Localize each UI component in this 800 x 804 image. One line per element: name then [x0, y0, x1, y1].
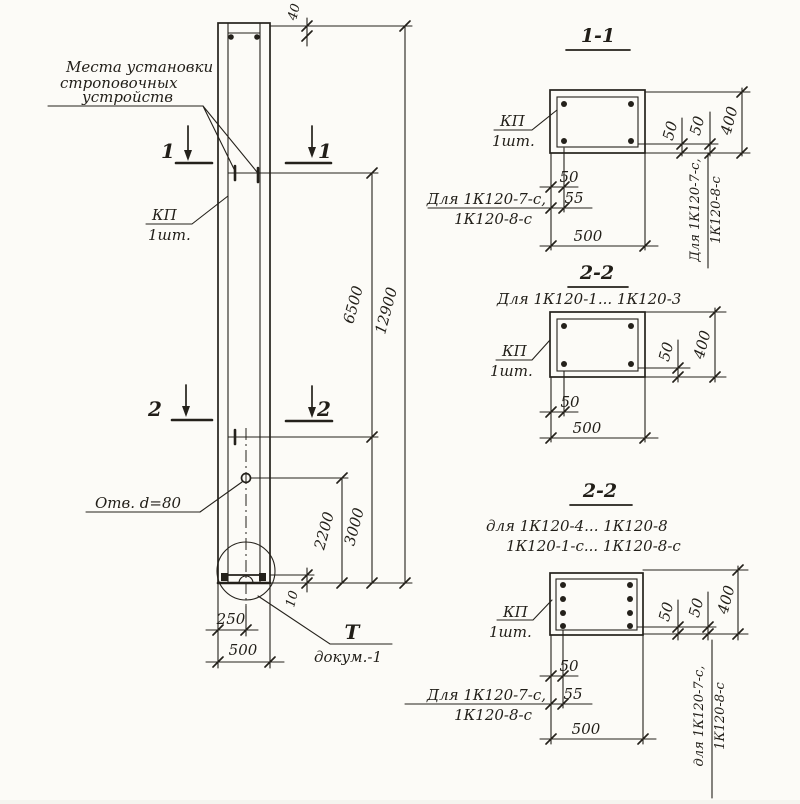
dim-50: 50 [559, 657, 579, 675]
embed-plate-bottom-left [221, 573, 228, 581]
variant-note-right-2: 1К120-8-с [713, 682, 728, 750]
section-2-2b-subtitle-2: 1К120-1-с... 1К120-8-с [506, 537, 681, 555]
kp-name: КП [151, 206, 178, 224]
dim-400: 400 [690, 328, 715, 362]
rebar-dot [560, 582, 566, 588]
dim-3000: 3000 [341, 506, 368, 548]
section-2-label-left: 2 [147, 397, 162, 421]
dim-40: 40 [285, 2, 304, 23]
rebar-dot [627, 610, 633, 616]
rebar-dot [561, 101, 567, 107]
stirrup-outline [557, 97, 638, 147]
section-2-2b-title: 2-2 [582, 480, 617, 502]
dim-400: 400 [714, 583, 739, 617]
kp-name: КП [502, 603, 529, 621]
embed-plate-bottom-right [259, 573, 266, 581]
variant-note-right-2: 1К120-8-с [709, 176, 724, 244]
dim-500: 500 [574, 227, 603, 245]
section-1-1-title: 1-1 [581, 25, 615, 47]
embed-dot-top-right [254, 34, 260, 40]
section-2-2a-subtitle: Для 1К120-1... 1К120-3 [496, 290, 681, 308]
variant-note-left-2: 1К120-8-с [454, 210, 532, 228]
dim-500: 500 [229, 641, 258, 659]
technical-drawing: 1 1 2 2 Места установки строповочных уст… [0, 0, 800, 800]
dim-55: 55 [564, 189, 583, 207]
dim-6500: 6500 [340, 284, 367, 326]
detail-leader [258, 596, 392, 644]
dim-50: 50 [559, 168, 579, 186]
kp-label-1-1: КП 1шт. [492, 110, 557, 150]
dim-250: 250 [216, 610, 246, 628]
dimension-lines [206, 18, 412, 668]
detail-ref-top: Т [345, 620, 362, 644]
section-outline [550, 312, 645, 377]
variant-note-left-2: 1К120-8-с [454, 706, 532, 724]
embed-dot-top-left [228, 34, 234, 40]
dim-r50a: 50 [655, 600, 677, 624]
rebar-dot [561, 323, 567, 329]
rebar-dot [627, 596, 633, 602]
kp-qty: 1шт. [148, 226, 191, 244]
variant-note-right-1: Для 1К120-7-с, [688, 158, 703, 262]
strop-note-line3: устройств [81, 88, 173, 106]
rebar-dot [627, 582, 633, 588]
kp-label-main: КП 1шт. [146, 196, 228, 244]
stirrup-outline [556, 579, 637, 630]
dim-55: 55 [563, 685, 582, 703]
rebar-dot [628, 323, 634, 329]
section-mark-1: 1 1 [161, 126, 332, 163]
strop-note-leaders [48, 106, 257, 172]
dim-10: 10 [283, 589, 302, 609]
column-inner-lines [228, 23, 260, 583]
rebar-dot [628, 138, 634, 144]
dim-r50a: 50 [659, 119, 681, 143]
kp-qty: 1шт. [490, 362, 533, 380]
hole-note-text: Отв. d=80 [95, 494, 182, 512]
kp-name: КП [499, 112, 526, 130]
dim-2200: 2200 [310, 510, 338, 553]
kp-label-2-2b: КП 1шт. [489, 600, 552, 641]
dim-r50b: 50 [686, 114, 708, 138]
kp-qty: 1шт. [492, 132, 535, 150]
section-2-2a-title: 2-2 [579, 262, 614, 284]
kp-name: КП [501, 342, 528, 360]
rebar-dot [628, 361, 634, 367]
section-1-label-left: 1 [161, 139, 175, 163]
dimension-ticks [213, 21, 410, 667]
section-2-2a-view: 2-2 Для 1К120-1... 1К120-3 КП 1шт. 50 50… [490, 262, 726, 443]
variant-note-right-1: для 1К120-7-с, [692, 666, 707, 767]
dim-r50b: 50 [685, 596, 707, 620]
stirrup-outline [557, 319, 638, 371]
rebar-dot [560, 610, 566, 616]
rebar-dot [560, 596, 566, 602]
dim-500: 500 [572, 720, 601, 738]
strop-point-marks [235, 166, 258, 444]
column-outline [218, 23, 270, 583]
kp-qty: 1шт. [489, 623, 532, 641]
section-1-1-view: 1-1 КП 1шт. 50 55 500 Для 1К120-7-с, 1К1… [426, 25, 750, 268]
dimension-labels: 40 12900 6500 3000 2200 10 250 500 [216, 2, 401, 659]
section-1-label-right: 1 [318, 139, 332, 163]
dim-50: 50 [560, 393, 580, 411]
section-2-label-right: 2 [316, 397, 331, 421]
rebar-dot [561, 138, 567, 144]
dim-500: 500 [573, 419, 602, 437]
blueprint-sheet: 1 1 2 2 Места установки строповочных уст… [0, 0, 800, 800]
section-2-2b-subtitle-1: для 1К120-4... 1К120-8 [486, 517, 668, 535]
detail-ref-bottom: докум.-1 [314, 648, 382, 666]
dim-400: 400 [717, 104, 742, 138]
kp-label-2-2a: КП 1шт. [490, 340, 550, 380]
section-mark-2: 2 2 [147, 385, 332, 421]
variant-note-left-1: Для 1К120-7-с, [426, 190, 546, 208]
dim-r50: 50 [655, 340, 677, 364]
column-elevation-view: 1 1 2 2 Места установки строповочных уст… [48, 2, 412, 668]
variant-note-left-1: Для 1К120-7-с, [426, 686, 546, 704]
section-2-2b-view: 2-2 для 1К120-4... 1К120-8 1К120-1-с... … [405, 480, 748, 798]
detail-callout: Т докум.-1 [258, 596, 392, 666]
rebar-dot [561, 361, 567, 367]
rebar-dot [560, 623, 566, 629]
rebar-dot [627, 623, 633, 629]
rebar-dot [628, 101, 634, 107]
strop-note: Места установки строповочных устройств [48, 58, 257, 172]
dim-12900: 12900 [371, 285, 401, 336]
